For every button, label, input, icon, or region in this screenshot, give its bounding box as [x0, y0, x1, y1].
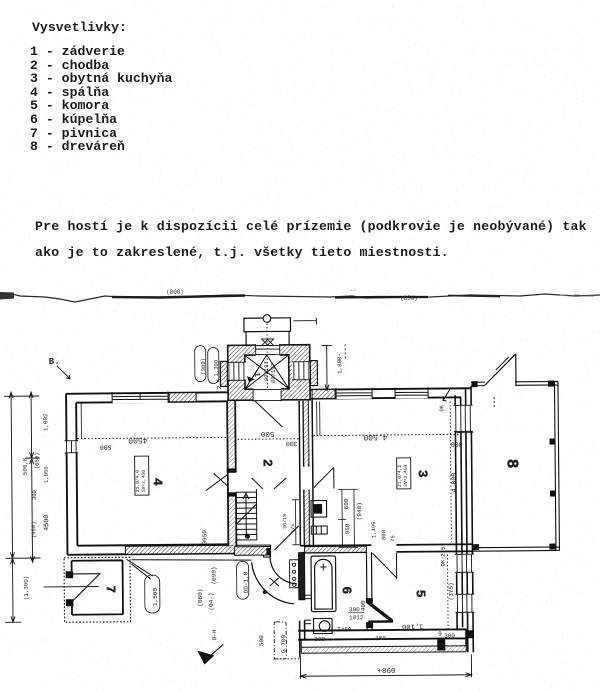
svg-text:2: 2: [260, 459, 275, 467]
svg-text:1,002: 1,002: [42, 413, 49, 431]
svg-text:4,800: 4,800: [451, 473, 458, 493]
svg-text:0-H: 0-H: [211, 629, 218, 640]
svg-text:4500: 4500: [43, 515, 51, 531]
svg-text:(950): (950): [30, 522, 37, 539]
svg-text:17x: 17x: [290, 524, 296, 533]
svg-text:400: 400: [360, 600, 367, 611]
svg-text:B.: B.: [49, 357, 60, 367]
svg-text:(1,300): (1,300): [23, 576, 30, 600]
svg-text:21,0/4,5: 21,0/4,5: [397, 465, 403, 487]
svg-text:600: 600: [343, 498, 350, 509]
svg-text:300: 300: [286, 440, 298, 447]
svg-text:(090): (090): [211, 566, 218, 584]
svg-text:1,100: 1,100: [402, 622, 423, 630]
svg-text:G 700: G 700: [280, 634, 287, 652]
svg-text:(900): (900): [200, 358, 207, 375]
svg-text:(04-): (04-): [208, 592, 215, 610]
svg-text:4500: 4500: [128, 435, 147, 444]
svg-text:500,8: 500,8: [22, 457, 29, 475]
svg-text:800: 800: [380, 530, 387, 540]
svg-text:⟨850⟩: ⟨850⟩: [400, 295, 418, 302]
svg-text:1,495: 1,495: [370, 522, 377, 539]
svg-text:300: 300: [314, 636, 325, 643]
svg-text:1: 1: [252, 372, 261, 377]
svg-text:500: 500: [100, 443, 112, 450]
svg-text:OK: OK: [438, 404, 445, 411]
svg-text:150: 150: [375, 635, 386, 642]
svg-text:950: 950: [344, 523, 351, 534]
svg-text:1,300: 1,300: [213, 360, 220, 377]
svg-text:1,500: 1,500: [152, 588, 159, 606]
svg-text:1,050: 1,050: [43, 466, 50, 483]
svg-text:DO-1,0: DO-1,0: [243, 571, 250, 593]
svg-text:(050): (050): [34, 452, 41, 469]
svg-text:(940): (940): [356, 502, 363, 520]
svg-text:80/197: 80/197: [270, 363, 277, 383]
svg-text:(060): (060): [197, 589, 204, 607]
svg-text:ˇˇ: ˇˇ: [350, 289, 357, 296]
svg-text:1,800-: 1,800-: [336, 353, 343, 374]
svg-text:21,0/4,0: 21,0/4,0: [135, 470, 141, 492]
svg-text:9: 9: [438, 631, 442, 638]
svg-text:2,5: 2,5: [216, 378, 223, 389]
svg-text:30/19: 30/19: [282, 514, 288, 529]
svg-text:8: 8: [503, 459, 521, 469]
svg-text:75: 75: [389, 535, 396, 542]
svg-text:7: 7: [103, 585, 118, 593]
svg-text:1012: 1012: [349, 614, 364, 621]
svg-text:4: 4: [150, 478, 165, 486]
svg-text:OK-2,5: OK-2,5: [439, 547, 446, 567]
svg-text:SV=2,450: SV=2,450: [403, 464, 409, 486]
svg-text:300: 300: [444, 632, 455, 639]
svg-text:(375): (375): [448, 582, 455, 600]
svg-text:3: 3: [415, 470, 430, 478]
svg-text:5: 5: [413, 590, 428, 598]
svg-text:300: 300: [451, 440, 463, 447]
svg-text:+860: +860: [377, 668, 396, 676]
svg-text:4,500: 4,500: [363, 432, 387, 441]
svg-text:300: 300: [31, 490, 38, 500]
svg-text:T450: T450: [337, 626, 352, 633]
svg-text:500: 500: [258, 635, 265, 646]
svg-text:500: 500: [260, 429, 274, 437]
svg-text:0950: 0950: [201, 530, 208, 545]
svg-text:⟨800⟩: ⟨800⟩: [166, 289, 184, 296]
svg-text:300: 300: [349, 606, 360, 613]
svg-text:6: 6: [339, 586, 354, 594]
svg-text:SV=2,450: SV=2,450: [141, 470, 147, 492]
